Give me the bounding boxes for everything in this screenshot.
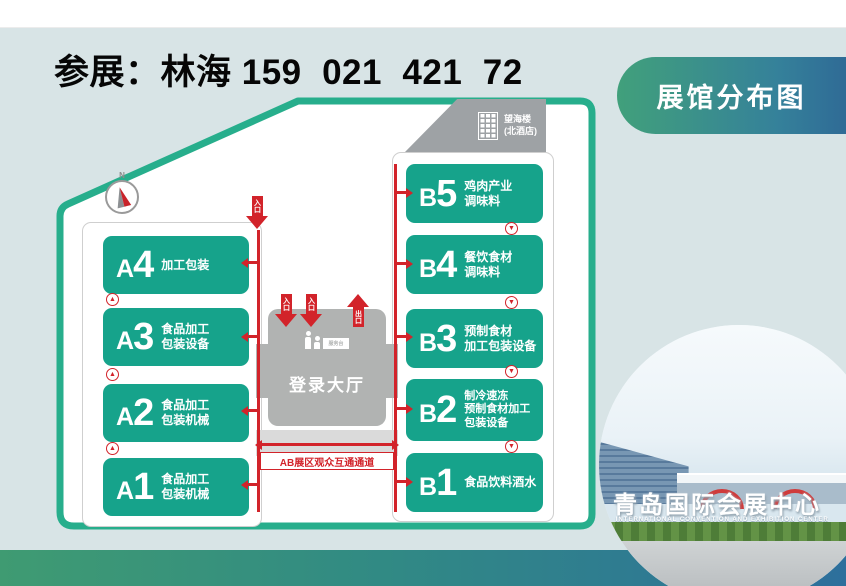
hall-block-a1: A1 食品加工包装机械 bbox=[103, 458, 249, 516]
hall-desc: 餐饮食材调味料 bbox=[464, 250, 512, 280]
tick-arrow-icon bbox=[396, 262, 406, 265]
photo-road bbox=[599, 541, 846, 586]
photo-hedge bbox=[599, 522, 846, 540]
login-hall-label: 登录大厅 bbox=[268, 371, 386, 396]
circled-up-arrow-icon: ▲ bbox=[106, 368, 119, 381]
hall-id: A3 bbox=[116, 318, 153, 356]
hall-id: B4 bbox=[419, 246, 456, 284]
service-desk-label: 服务台 bbox=[328, 340, 343, 347]
hotel-label: 望海楼 (北酒店) bbox=[504, 114, 537, 137]
hall-desc: 加工包装 bbox=[161, 258, 209, 273]
hall-id: A1 bbox=[116, 468, 153, 506]
hall-desc: 食品加工包装设备 bbox=[161, 322, 209, 352]
tick-arrow-icon bbox=[396, 480, 406, 483]
hall-block-b2: B2 制冷速冻预制食材加工包装设备 bbox=[406, 379, 543, 441]
tick-arrow-icon bbox=[248, 483, 259, 486]
tick-arrow-icon bbox=[396, 191, 406, 194]
entrance-arrow-icon: 入口 bbox=[300, 294, 322, 327]
hall-id: B1 bbox=[419, 464, 456, 502]
circled-down-arrow-icon: ▼ bbox=[505, 365, 518, 378]
hall-desc: 食品加工包装机械 bbox=[161, 472, 209, 502]
compass-needle bbox=[113, 186, 131, 209]
screenshot-root: 参展：林海 159 021 421 72 展馆分布图 望海楼 (北酒店) N A… bbox=[0, 0, 846, 586]
hall-desc: 制冷速冻预制食材加工包装设备 bbox=[464, 390, 530, 430]
circled-up-arrow-icon: ▲ bbox=[106, 442, 119, 455]
hall-map-banner: 展馆分布图 bbox=[617, 57, 846, 134]
hall-block-b3: B3 预制食材加工包装设备 bbox=[406, 309, 543, 368]
tick-arrow-icon bbox=[396, 407, 406, 410]
hall-desc: 食品饮料酒水 bbox=[464, 475, 536, 490]
tick-arrow-icon bbox=[248, 261, 259, 264]
hall-desc: 食品加工包装机械 bbox=[161, 398, 209, 428]
tick-arrow-icon bbox=[396, 335, 406, 338]
page-title: 参展：林海 159 021 421 72 bbox=[54, 44, 523, 95]
hall-id: B3 bbox=[419, 320, 456, 358]
compass-north-label: N bbox=[102, 172, 142, 180]
entrance-arrow-icon: 入口 bbox=[275, 294, 297, 327]
hall-desc: 预制食材加工包装设备 bbox=[464, 324, 536, 354]
hall-block-a3: A3 食品加工包装设备 bbox=[103, 308, 249, 366]
tick-arrow-icon bbox=[248, 335, 259, 338]
hall-b-container: B5 鸡肉产业调味料 B4 餐饮食材调味料 B3 预制食材加工包装设备 B2 制… bbox=[392, 152, 554, 522]
hall-id: A4 bbox=[116, 246, 153, 284]
hall-block-b4: B4 餐饮食材调味料 bbox=[406, 235, 543, 294]
circled-up-arrow-icon: ▲ bbox=[106, 293, 119, 306]
building-icon bbox=[478, 112, 498, 140]
hall-id: B5 bbox=[419, 175, 456, 213]
circled-down-arrow-icon: ▼ bbox=[505, 440, 518, 453]
hall-block-a4: A4 加工包装 bbox=[103, 236, 249, 294]
circled-down-arrow-icon: ▼ bbox=[505, 222, 518, 235]
hall-block-a2: A2 食品加工包装机械 bbox=[103, 384, 249, 442]
corridor-label: AB展区观众互通通道 bbox=[280, 454, 374, 469]
entrance-arrow-icon: 入口 bbox=[246, 196, 268, 229]
exit-arrow-icon: 出口 bbox=[347, 294, 369, 327]
hall-id: B2 bbox=[419, 391, 456, 429]
top-white-strip bbox=[0, 0, 846, 28]
hall-block-b1: B1 食品饮料酒水 bbox=[406, 453, 543, 512]
hall-desc: 鸡肉产业调味料 bbox=[464, 179, 512, 209]
double-arrow-icon bbox=[262, 443, 392, 446]
photo-monument-text: 青岛国际会展中心 bbox=[613, 485, 846, 520]
corridor-label-box: AB展区观众互通通道 bbox=[260, 452, 394, 470]
compass-icon: N bbox=[102, 172, 142, 218]
hall-map-banner-label: 展馆分布图 bbox=[657, 76, 807, 115]
venue-photo: 青岛国际会展中心 INTERNATIONAL CONVENTION AND EX… bbox=[599, 325, 846, 586]
corridor-line-b bbox=[394, 164, 397, 512]
tick-arrow-icon bbox=[248, 409, 259, 412]
circled-down-arrow-icon: ▼ bbox=[505, 296, 518, 309]
hall-id: A2 bbox=[116, 394, 153, 432]
hall-block-b5: B5 鸡肉产业调味料 bbox=[406, 164, 543, 223]
